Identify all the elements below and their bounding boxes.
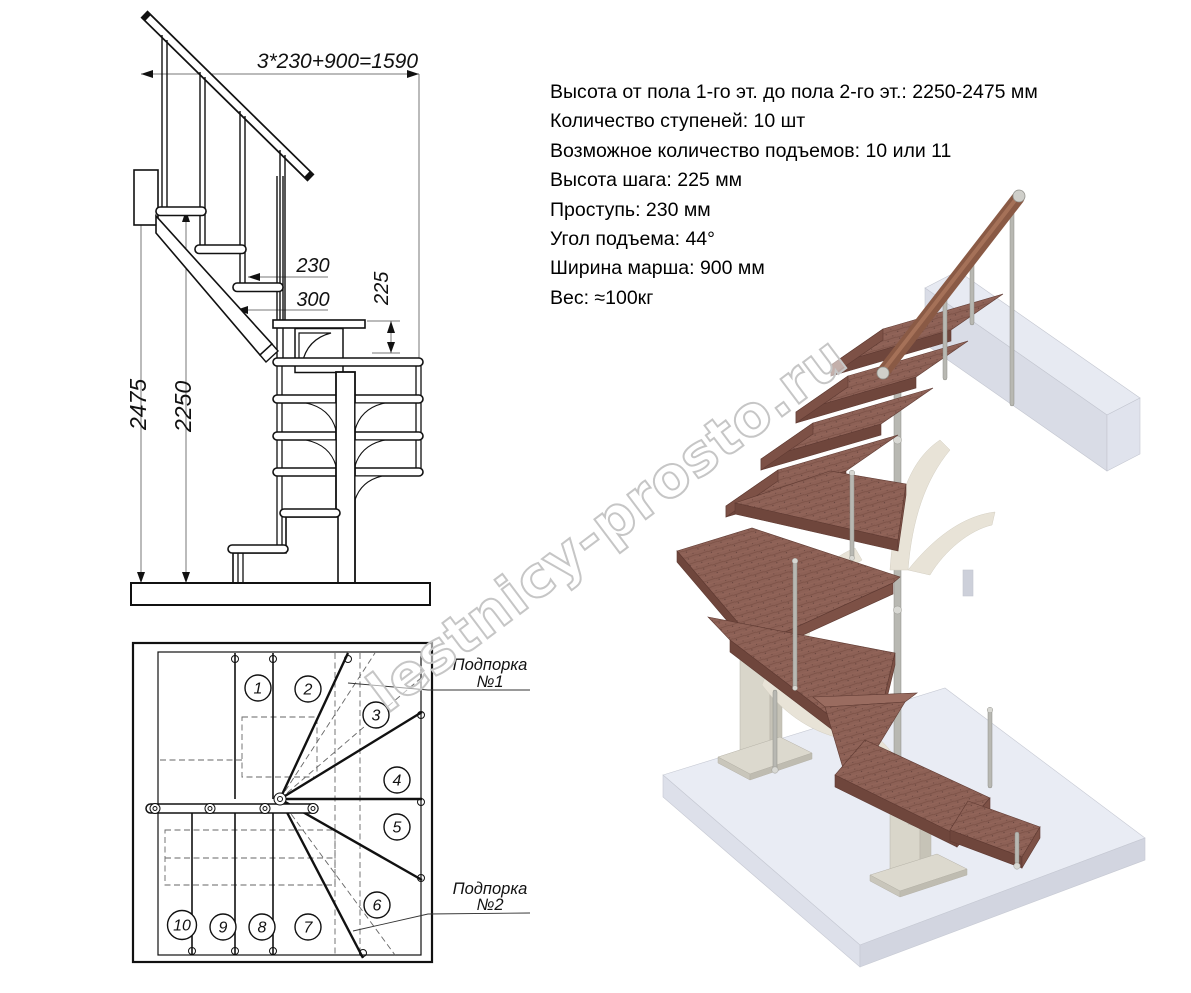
- step-number-4: 4: [393, 773, 402, 790]
- dim-riser-225: 225: [371, 271, 393, 306]
- step-number-7: 7: [304, 920, 314, 937]
- spec-line-step-count: Количество ступеней: 10 шт: [550, 107, 1110, 136]
- step-number-2: 2: [303, 682, 313, 699]
- dim-depth-300: 300: [296, 289, 329, 311]
- beam-bracket: [963, 570, 973, 596]
- side-view-drawing: 3*230+900=1590 230 300 225 2475 2250: [120, 2, 470, 630]
- plan-view-drawing: 1 2 3 4 5 6 7 8 9 10 Подпорка №1 Подпорк…: [125, 640, 545, 972]
- staircase-spec-page: 3*230+900=1590 230 300 225 2475 2250: [0, 0, 1191, 993]
- step-number-9: 9: [219, 920, 228, 937]
- step-number-3: 3: [372, 708, 381, 725]
- step-number-1: 1: [254, 681, 263, 698]
- step-number-5: 5: [393, 820, 402, 837]
- dim-total-run: 3*230+900=1590: [257, 50, 418, 73]
- support2-label-line2: №2: [476, 896, 503, 914]
- handrail-end-cap-top: [1013, 190, 1025, 202]
- support1-label-line1: Подпорка: [453, 656, 528, 674]
- dim-height-2250: 2250: [170, 381, 196, 433]
- support-labels: Подпорка №1 Подпорка №2: [453, 656, 528, 914]
- side-view-structure: [131, 14, 430, 605]
- step-number-8: 8: [258, 920, 267, 937]
- step-number-10: 10: [173, 918, 191, 935]
- staircase-3d-render: [640, 140, 1185, 985]
- support1-label-line2: №1: [476, 673, 503, 691]
- handrail-end-cap-bottom: [877, 367, 889, 379]
- plan-handrail: [146, 793, 318, 814]
- spec-line-height-range: Высота от пола 1-го эт. до пола 2-го эт.…: [550, 78, 1110, 107]
- step-number-6: 6: [373, 898, 382, 915]
- center-pole: [894, 368, 902, 800]
- dim-height-2475: 2475: [125, 379, 151, 431]
- dim-tread-230: 230: [295, 255, 329, 277]
